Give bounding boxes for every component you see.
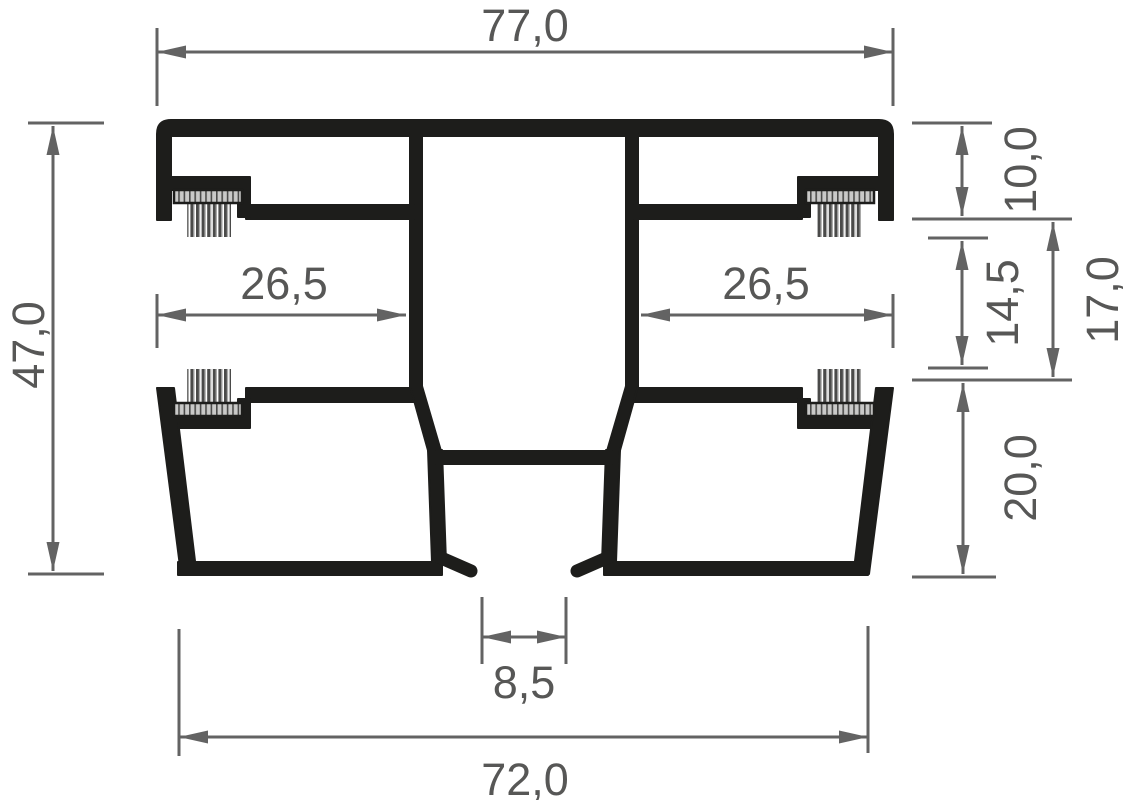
label-bottom-gap-width: 8,5 <box>493 657 556 708</box>
lower-right-brush-base <box>806 403 874 416</box>
neck-right-wall <box>602 450 620 562</box>
upper-left-flange <box>246 205 414 219</box>
center-box-right-wall <box>626 134 638 394</box>
label-upper-section-height: 10,0 <box>995 126 1046 214</box>
center-box-left-wall <box>410 134 422 394</box>
lower-left-flange <box>246 388 414 402</box>
label-lower-section-height: 20,0 <box>995 434 1046 522</box>
profile-cross-section-drawing: 77,0 47,0 26,5 26,5 10,0 14,5 17,0 20,0 … <box>0 0 1123 800</box>
profile-drawing-canvas: 77,0 47,0 26,5 26,5 10,0 14,5 17,0 20,0 … <box>0 0 1123 800</box>
neck-cross-bar <box>436 451 612 464</box>
left-chamber-bottom <box>178 562 442 575</box>
label-overall-height: 47,0 <box>3 301 54 389</box>
lower-left-brush-base <box>174 403 242 416</box>
profile-geometry <box>157 120 893 575</box>
neck-left-wall <box>428 450 446 562</box>
label-right-track-width: 26,5 <box>722 258 810 309</box>
upper-left-brush-bristles <box>187 203 231 237</box>
neck-taper-left <box>410 386 441 454</box>
upper-right-brush-base <box>806 190 874 203</box>
label-left-track-width: 26,5 <box>240 258 328 309</box>
upper-right-flange <box>634 205 802 219</box>
label-bottom-width: 72,0 <box>481 754 569 800</box>
upper-right-brush-bristles <box>817 203 861 237</box>
lower-left-brush-bristles <box>187 369 231 403</box>
lower-right-flange <box>634 388 802 402</box>
bottom-left-foot <box>439 557 471 571</box>
upper-left-brush-base <box>174 190 242 203</box>
lower-right-brush-bristles <box>817 369 861 403</box>
right-chamber-bottom <box>604 562 868 575</box>
label-mid-section-height: 17,0 <box>1077 256 1123 344</box>
label-track-opening-height: 14,5 <box>977 259 1028 347</box>
neck-taper-right <box>607 386 638 454</box>
label-top-width: 77,0 <box>481 0 569 51</box>
